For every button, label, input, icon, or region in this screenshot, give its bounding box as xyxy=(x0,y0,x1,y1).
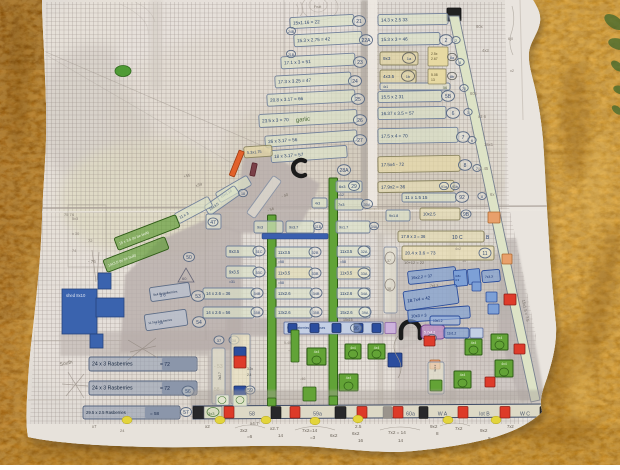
svg-text:70: 70 xyxy=(462,87,466,91)
svg-text:13x2.6: 13x2.6 xyxy=(278,310,291,315)
svg-text:3x3: 3x3 xyxy=(208,411,215,416)
svg-text:x2: x2 xyxy=(205,424,210,429)
svg-text:11x3.5: 11x3.5 xyxy=(340,271,353,276)
svg-text:11x3.5: 11x3.5 xyxy=(278,271,291,276)
svg-text:17.5x4 - 72: 17.5x4 - 72 xyxy=(381,162,405,167)
svg-text:24B: 24B xyxy=(288,30,295,34)
svg-text:4x4.3: 4x4.3 xyxy=(433,364,437,372)
svg-text:91a: 91a xyxy=(441,185,447,189)
svg-text:11x1.2: 11x1.2 xyxy=(447,332,457,336)
svg-text:4x4: 4x4 xyxy=(314,350,320,354)
svg-text:11x3.5: 11x3.5 xyxy=(340,249,353,254)
svg-text:4x3: 4x3 xyxy=(315,202,320,206)
svg-text:91b: 91b xyxy=(452,185,458,189)
svg-text:31C: 31C xyxy=(256,250,263,254)
svg-text:14 x 2.6 = 36: 14 x 2.6 = 36 xyxy=(206,291,231,296)
svg-text:16: 16 xyxy=(358,438,364,443)
svg-text:29: 29 xyxy=(351,184,357,190)
svg-text:24 x 3 Rasberries: 24 x 3 Rasberries xyxy=(92,362,133,368)
svg-text:60a: 60a xyxy=(406,412,415,418)
svg-text:x3 6: x3 6 xyxy=(478,114,487,119)
svg-text:17.9x2 = 36: 17.9x2 = 36 xyxy=(381,184,406,189)
svg-text:7x2 = 14: 7x2 = 14 xyxy=(388,430,406,435)
svg-text:39A: 39A xyxy=(362,311,369,315)
svg-text:24: 24 xyxy=(352,79,358,85)
svg-text:Fruit: Fruit xyxy=(314,5,321,9)
svg-text:x2: x2 xyxy=(510,69,514,73)
svg-text:=58: =58 xyxy=(278,260,284,264)
svg-text:8b: 8b xyxy=(450,75,454,79)
svg-text:32A: 32A xyxy=(361,250,368,254)
svg-text:74: 74 xyxy=(72,249,76,253)
svg-text:4.3: 4.3 xyxy=(455,278,460,282)
svg-text:7x2: 7x2 xyxy=(507,424,514,429)
svg-text:9x2: 9x2 xyxy=(430,424,438,429)
svg-text:15.5 x 2 31: 15.5 x 2 31 xyxy=(381,94,404,99)
svg-text:9x3: 9x3 xyxy=(257,226,263,230)
svg-text:6x2: 6x2 xyxy=(330,433,338,438)
svg-text:10x1.2: 10x1.2 xyxy=(433,319,443,323)
svg-text:2.4: 2.4 xyxy=(247,373,252,377)
svg-text:3x2.7: 3x2.7 xyxy=(218,372,222,380)
svg-text:32B: 32B xyxy=(312,251,319,255)
svg-text:8: 8 xyxy=(464,163,467,169)
svg-text:= 72: = 72 xyxy=(160,362,170,368)
svg-text:14 x 2.6 = 56: 14 x 2.6 = 56 xyxy=(206,310,231,315)
svg-text:4x1: 4x1 xyxy=(383,85,388,89)
svg-text:50: 50 xyxy=(186,255,192,261)
svg-text:2.5x: 2.5x xyxy=(431,52,438,56)
svg-text:3x2: 3x2 xyxy=(240,428,248,433)
svg-text:21B: 21B xyxy=(288,53,295,57)
svg-text:6: 6 xyxy=(452,111,455,117)
svg-text:8: 8 xyxy=(436,431,439,436)
svg-text:6x3: 6x3 xyxy=(339,184,346,189)
svg-text:30A: 30A xyxy=(364,203,371,207)
svg-text:5-48: 5-48 xyxy=(284,341,291,345)
svg-text:34A: 34A xyxy=(361,292,368,296)
svg-text:11 x 1.5 15: 11 x 1.5 15 xyxy=(405,195,428,200)
svg-text:4x3.5: 4x3.5 xyxy=(383,74,395,79)
svg-text:2: 2 xyxy=(455,39,457,43)
svg-text:-46: -46 xyxy=(300,377,306,381)
svg-text:9x3.5: 9x3.5 xyxy=(229,249,240,254)
svg-text:9B: 9B xyxy=(463,212,470,218)
svg-text:4x2: 4x2 xyxy=(455,247,461,251)
svg-text:13: 13 xyxy=(431,78,435,82)
svg-text:15x1: 15x1 xyxy=(484,142,494,147)
svg-text:72: 72 xyxy=(88,238,93,243)
svg-text:9x3.7: 9x3.7 xyxy=(289,226,298,230)
svg-text:92: 92 xyxy=(459,195,465,201)
svg-text:x2.7: x2.7 xyxy=(270,426,279,431)
svg-text:W C: W C xyxy=(520,412,530,418)
svg-text:9x2: 9x2 xyxy=(480,428,488,433)
svg-text:5.08: 5.08 xyxy=(431,73,438,77)
svg-text:7x2: 7x2 xyxy=(455,426,463,431)
svg-text:24 x 3 Rasberries: 24 x 3 Rasberries xyxy=(92,386,133,392)
svg-text:34B: 34B xyxy=(313,292,320,296)
svg-text:7x1.3: 7x1.3 xyxy=(430,284,438,288)
svg-text:14: 14 xyxy=(278,433,284,438)
svg-text:54: 54 xyxy=(196,320,202,326)
svg-text:4x4: 4x4 xyxy=(471,341,477,345)
svg-text:shed 8x10: shed 8x10 xyxy=(66,293,86,298)
svg-text:4x3: 4x3 xyxy=(482,48,489,53)
svg-text:38: 38 xyxy=(387,287,391,291)
svg-text:2.67: 2.67 xyxy=(431,57,438,61)
svg-text:9x3.5: 9x3.5 xyxy=(229,270,240,275)
svg-text:5.7x4.2: 5.7x4.2 xyxy=(424,331,435,335)
svg-text:10+12 = 22: 10+12 = 22 xyxy=(404,260,425,265)
svg-text:11: 11 xyxy=(482,251,487,257)
svg-text:33A: 33A xyxy=(361,272,368,276)
svg-text:- 76: - 76 xyxy=(88,259,96,264)
svg-text:12x2.6: 12x2.6 xyxy=(278,291,291,296)
svg-text:33B: 33B xyxy=(312,272,319,276)
svg-text:6: 6 xyxy=(471,139,473,143)
svg-text:28A: 28A xyxy=(340,168,350,174)
svg-text:18: 18 xyxy=(241,192,245,196)
svg-text:60s: 60s xyxy=(470,91,477,96)
svg-text:4x4: 4x4 xyxy=(497,336,503,340)
svg-text:lot B: lot B xyxy=(479,412,490,418)
svg-text:=31: =31 xyxy=(229,280,235,284)
svg-text:21: 21 xyxy=(356,19,362,25)
svg-text:10: 10 xyxy=(462,259,466,263)
svg-text:10 C: 10 C xyxy=(452,235,463,241)
svg-text:47: 47 xyxy=(210,220,216,226)
svg-text:=12: =12 xyxy=(338,193,344,197)
svg-text:6j0: 6j0 xyxy=(508,37,513,41)
svg-text:9x1.8: 9x1.8 xyxy=(389,214,398,218)
svg-text:3.2x: 3.2x xyxy=(247,367,253,371)
svg-text:26: 26 xyxy=(357,118,363,124)
svg-text:= 58: = 58 xyxy=(150,411,160,416)
svg-text:15.3 x 3 = 46: 15.3 x 3 = 46 xyxy=(381,37,408,42)
svg-text:4x4: 4x4 xyxy=(374,346,380,350)
svg-text:7x3: 7x3 xyxy=(338,202,345,207)
svg-text:25: 25 xyxy=(355,97,361,103)
svg-text:37: 37 xyxy=(387,259,391,263)
svg-text:24: 24 xyxy=(120,428,125,433)
svg-text:34B: 34B xyxy=(254,292,261,296)
svg-text:5x3: 5x3 xyxy=(72,217,78,221)
svg-text:14: 14 xyxy=(398,438,404,443)
svg-text:53: 53 xyxy=(195,294,201,300)
svg-text:15x2.6: 15x2.6 xyxy=(340,310,353,315)
svg-text:56: 56 xyxy=(443,86,447,90)
svg-text:96: 96 xyxy=(353,326,359,332)
svg-text:23: 23 xyxy=(357,60,363,66)
svg-text:7: 7 xyxy=(462,135,465,141)
svg-text:x 30: x 30 xyxy=(72,232,79,236)
svg-text:60x: 60x xyxy=(476,24,484,29)
svg-text:6x2: 6x2 xyxy=(352,431,360,436)
svg-text:60: 60 xyxy=(182,276,187,281)
svg-text:= 72: = 72 xyxy=(160,386,170,392)
svg-text:35B: 35B xyxy=(313,311,320,315)
svg-text:20.4 x 3.6 = 73: 20.4 x 3.6 = 73 xyxy=(405,251,436,256)
svg-text:5B: 5B xyxy=(445,94,452,100)
svg-text:=58: =58 xyxy=(340,260,346,264)
svg-text:37: 37 xyxy=(217,338,222,343)
svg-text:16.37 x 3.5 = 57: 16.37 x 3.5 = 57 xyxy=(381,111,415,117)
svg-text:7x2=14: 7x2=14 xyxy=(302,428,318,433)
svg-text:59a: 59a xyxy=(313,412,322,418)
svg-text:11x2.6: 11x2.6 xyxy=(340,291,353,296)
svg-text:15x15: 15x15 xyxy=(343,318,353,322)
svg-text:57: 57 xyxy=(183,410,189,416)
svg-text:14.3 x 2.5 33: 14.3 x 2.5 33 xyxy=(381,17,408,22)
svg-text:11x3.5: 11x3.5 xyxy=(278,250,291,255)
svg-text:4x4: 4x4 xyxy=(350,346,356,350)
svg-text:8a: 8a xyxy=(450,56,454,60)
svg-text:1b: 1b xyxy=(406,74,411,79)
svg-text:31B: 31B xyxy=(315,225,322,229)
svg-text:27: 27 xyxy=(357,138,363,144)
svg-text:4x4: 4x4 xyxy=(501,362,507,366)
svg-text:29.5 x 2.5 Rasberries: 29.5 x 2.5 Rasberries xyxy=(86,410,126,415)
svg-text:3: 3 xyxy=(467,111,469,115)
svg-text:8: 8 xyxy=(459,61,461,65)
svg-text:10x2.5: 10x2.5 xyxy=(423,212,436,217)
svg-text:9x1.7: 9x1.7 xyxy=(339,226,348,230)
svg-text:2.5: 2.5 xyxy=(355,424,362,429)
svg-text:4x4: 4x4 xyxy=(346,376,352,380)
svg-text:1a: 1a xyxy=(407,56,412,61)
svg-text:17.9 x 3 = 36: 17.9 x 3 = 36 xyxy=(401,234,426,239)
svg-text:x7: x7 xyxy=(92,424,97,429)
svg-text:9x3: 9x3 xyxy=(383,56,391,61)
svg-text:2: 2 xyxy=(445,38,448,44)
svg-text:58: 58 xyxy=(249,412,255,418)
svg-text:=3: =3 xyxy=(310,435,316,440)
svg-text:17.5 x 4 = 70: 17.5 x 4 = 70 xyxy=(381,133,408,138)
svg-text:35B: 35B xyxy=(254,311,261,315)
svg-text:=58: =58 xyxy=(278,281,284,285)
svg-text:22A: 22A xyxy=(362,38,372,44)
svg-text:8: 8 xyxy=(481,195,483,199)
svg-text:34A: 34A xyxy=(371,225,378,229)
svg-text:x1 45: x1 45 xyxy=(478,166,489,171)
svg-text:7x3.3: 7x3.3 xyxy=(485,274,493,279)
svg-text:4x4: 4x4 xyxy=(460,373,466,377)
svg-text:33C: 33C xyxy=(256,271,263,275)
svg-text:=6: =6 xyxy=(247,434,253,439)
